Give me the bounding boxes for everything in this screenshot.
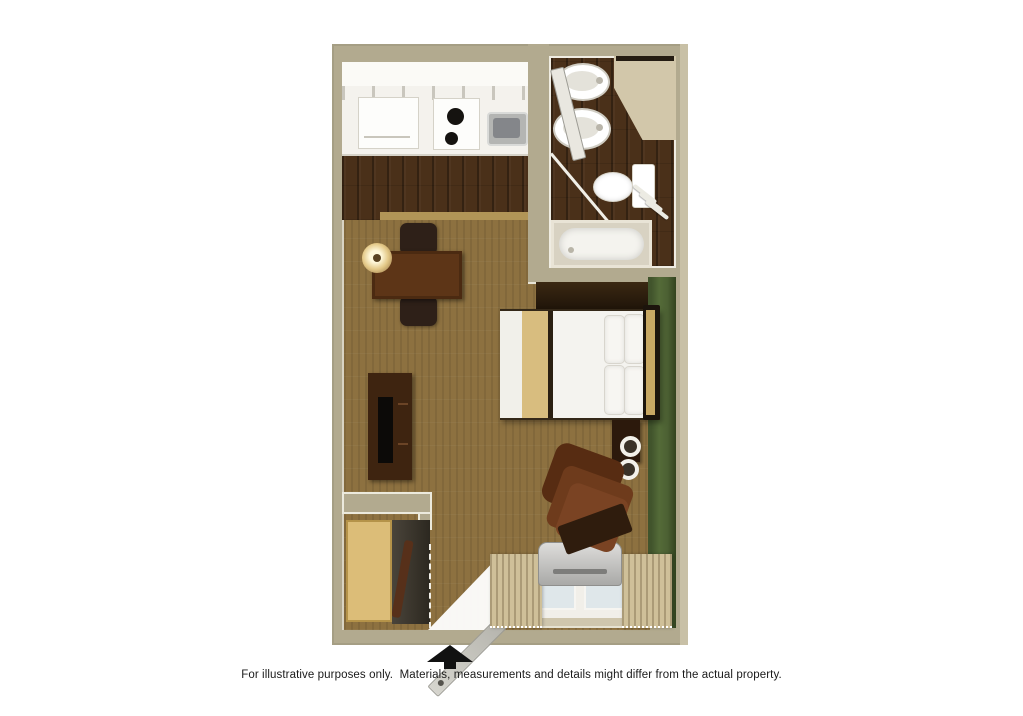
tv-stand-shelf-line: [398, 403, 408, 405]
pillow-icon-2: [624, 314, 645, 364]
alcove-wall-stub: [342, 492, 432, 514]
toilet-bowl-icon: [593, 172, 633, 202]
lamp-icon: [620, 436, 641, 457]
bed-accent-stripe: [522, 311, 548, 418]
headboard-icon: [643, 305, 660, 420]
floor-plan: [332, 44, 688, 645]
tv-stand-shelf-line-2: [398, 443, 408, 445]
curtain-icon: [490, 554, 542, 628]
stove-burner-icon-2: [445, 132, 458, 145]
closet-icon: [346, 520, 392, 622]
bathroom-sink-bowl: [565, 71, 599, 91]
refrigerator-icon: [358, 97, 419, 149]
bed-foot-fold: [500, 311, 522, 418]
kitchen-threshold: [380, 212, 528, 220]
dining-chair-icon-2: [400, 296, 437, 326]
tv-stand-icon: [368, 373, 412, 480]
bed-head-wall-panel: [536, 282, 650, 310]
pillow-icon: [604, 315, 625, 364]
ac-vent: [553, 569, 607, 574]
headboard-panel: [646, 310, 655, 415]
arrow-stem: [444, 661, 456, 669]
wall-sconce-icon: [362, 243, 392, 273]
bed-dark-stripe: [548, 311, 553, 418]
stove-burner-icon: [447, 108, 464, 125]
pillow-icon-4: [624, 366, 645, 415]
kitchen-sink-icon: [487, 112, 528, 146]
arrow-head: [427, 645, 473, 662]
bathroom-mirror-icon: [616, 56, 674, 61]
kitchen-sink-basin: [493, 118, 520, 138]
bathtub-enclosure: [551, 220, 652, 268]
entrance-arrow-icon: [427, 645, 473, 670]
kitchen-bath-divider-wall: [528, 44, 549, 282]
bed-icon: [500, 309, 660, 420]
outer-wall-highlight: [680, 44, 688, 645]
bathtub-drain: [568, 247, 574, 253]
bathroom-sink-faucet-2: [596, 124, 603, 131]
page: { "caption": { "text": "For illustrative…: [0, 0, 1023, 716]
kitchen-counter-backsplash: [342, 62, 528, 86]
bathroom-sink-faucet: [596, 77, 603, 84]
bathtub-icon: [559, 228, 644, 260]
entry-door-frame-line: [429, 544, 431, 628]
curtain-icon-2: [622, 554, 672, 628]
pillow-icon-3: [604, 365, 625, 415]
sconce-center: [373, 254, 381, 262]
refrigerator-handle: [364, 136, 410, 138]
television-icon: [378, 397, 393, 463]
disclaimer-caption: For illustrative purposes only. Material…: [0, 669, 1023, 681]
